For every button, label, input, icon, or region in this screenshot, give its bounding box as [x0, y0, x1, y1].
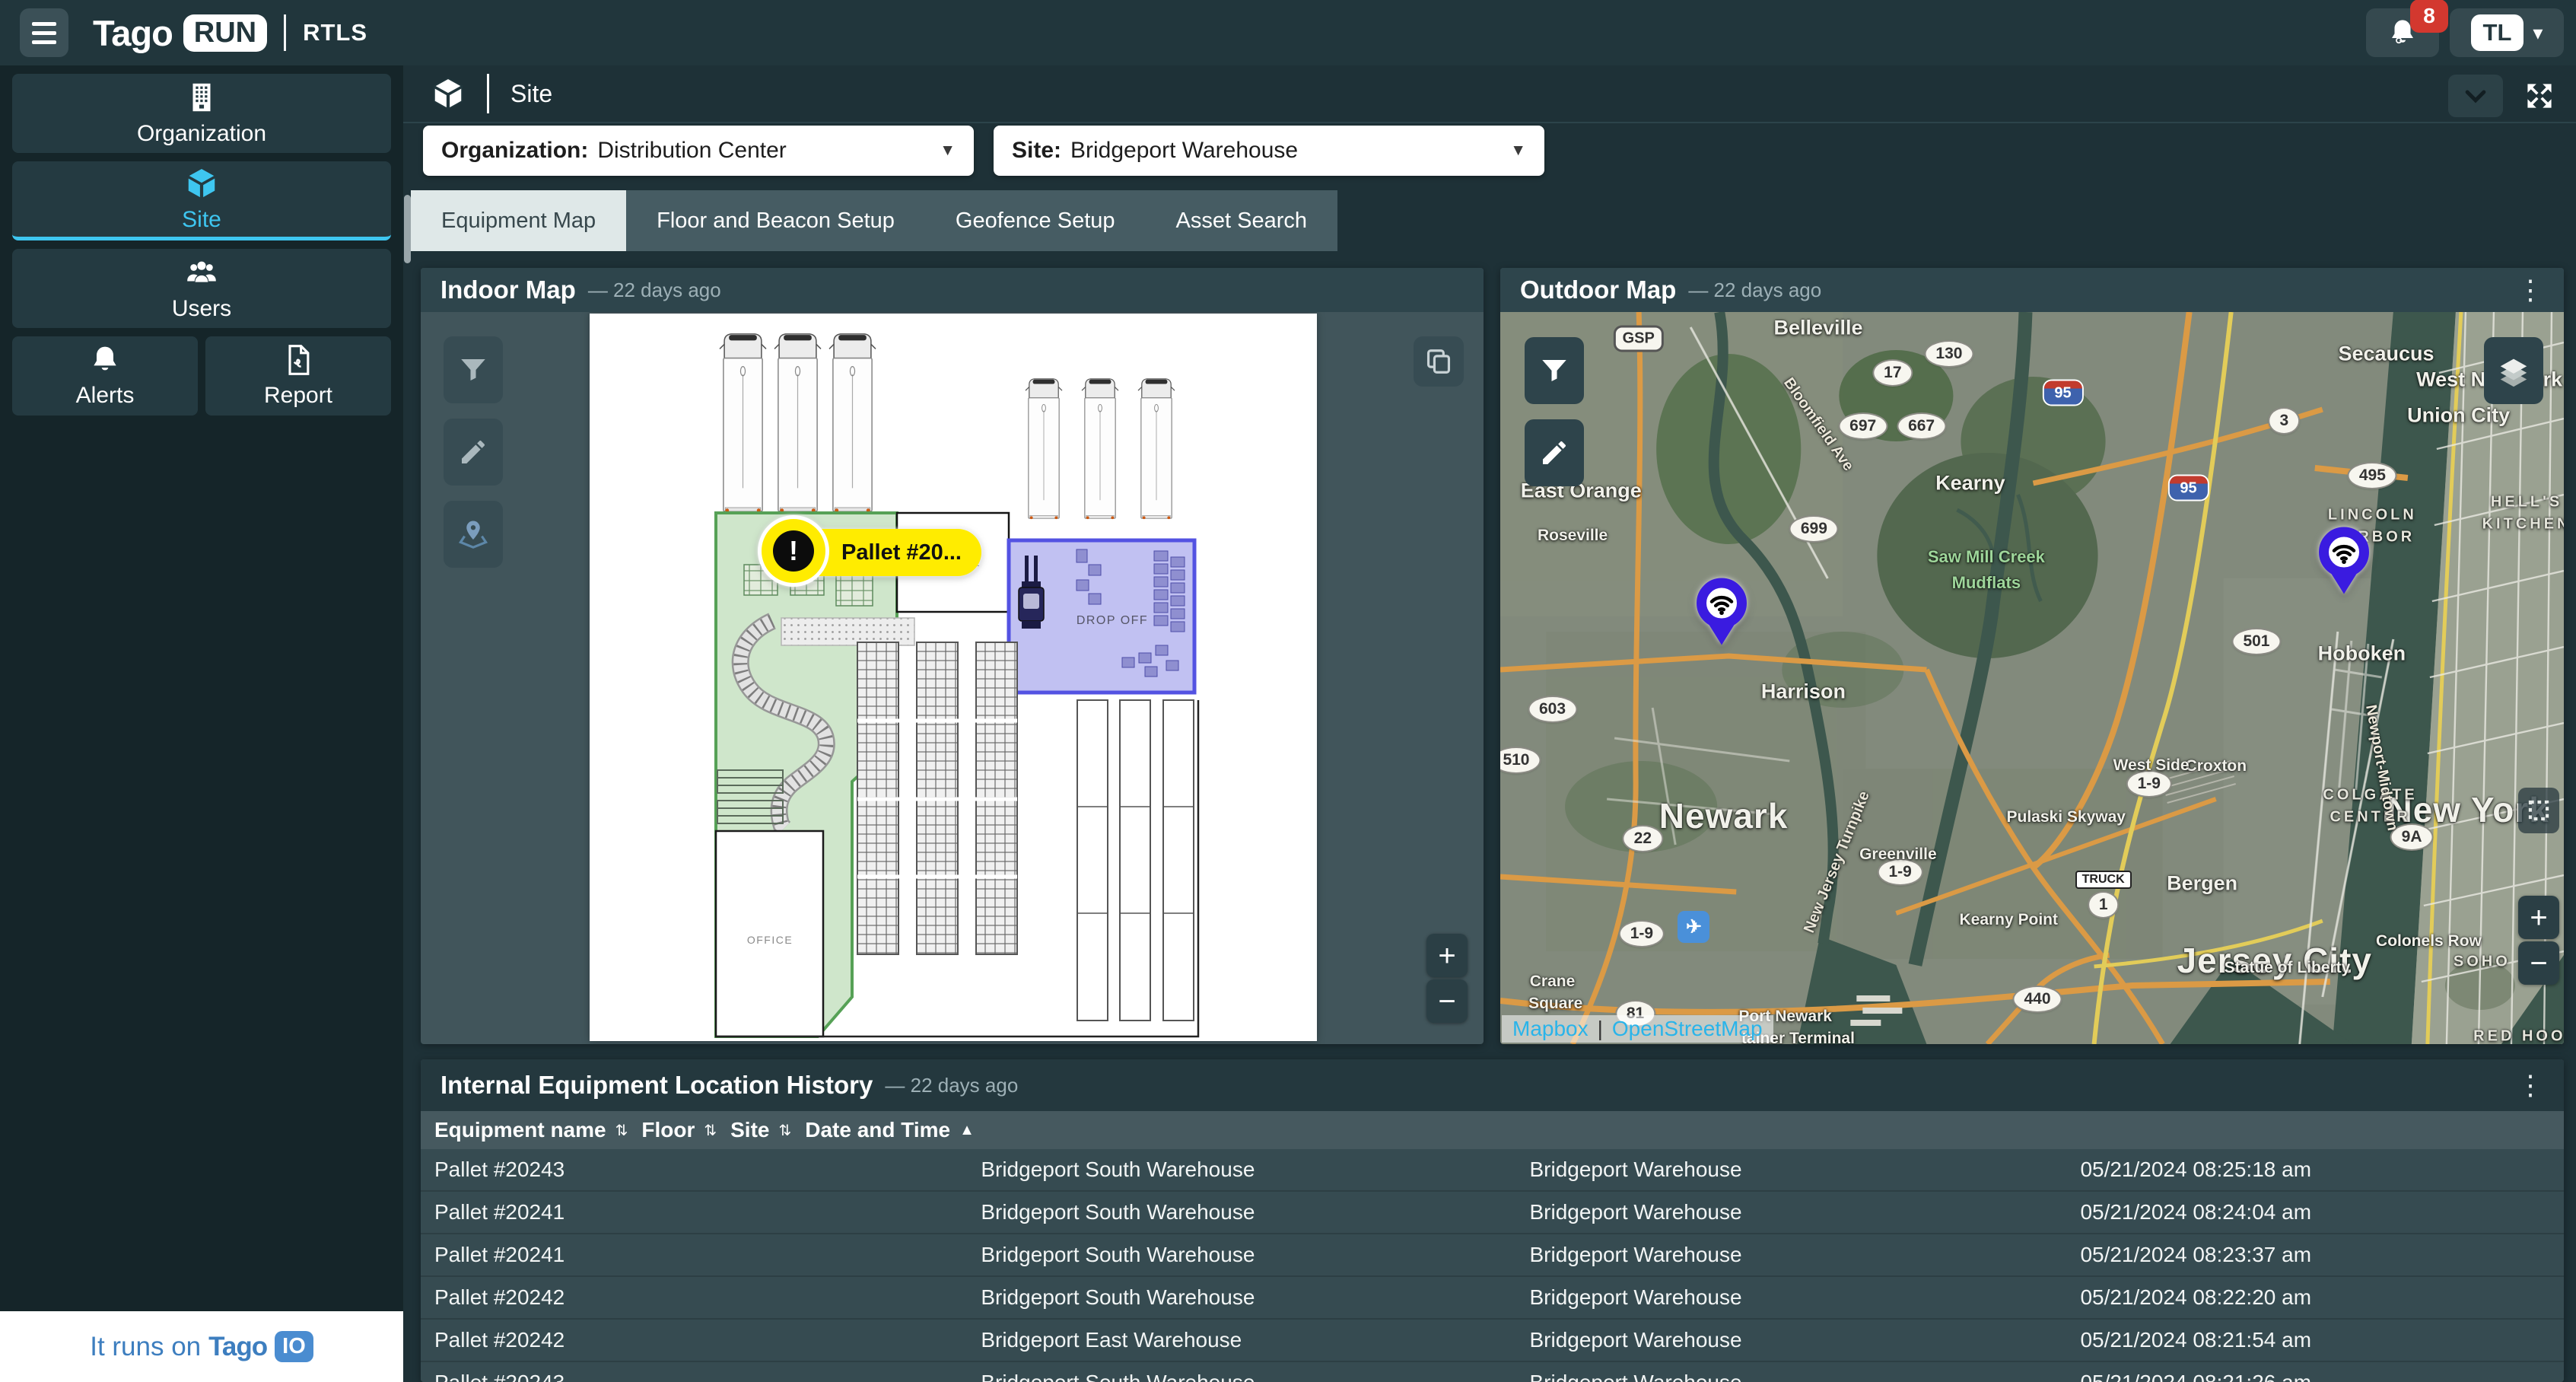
map-label: RED HOOK [2473, 1028, 2564, 1044]
site-cell: Bridgeport Warehouse [1515, 1149, 2066, 1190]
tab-bar: Equipment MapFloor and Beacon SetupGeofe… [411, 190, 1337, 251]
zoom-out-button[interactable]: − [2518, 941, 2559, 985]
filter-icon [457, 354, 489, 386]
indoor-map-panel: Indoor Map — 22 days ago [421, 268, 1484, 1044]
area-select-button[interactable] [2518, 788, 2559, 833]
powered-by-footer[interactable]: It runs on Tago IO [0, 1311, 403, 1382]
map-label: Bergen [2167, 872, 2237, 896]
sort-icon[interactable]: ⇅ [778, 1121, 791, 1140]
map-label: 95 [2169, 476, 2207, 499]
map-label: ✈ [1678, 911, 1709, 943]
datetime-cell: 05/21/2024 08:21:54 am [2066, 1320, 2564, 1361]
map-label: COLGATE [2323, 786, 2417, 804]
pencil-icon [458, 437, 488, 467]
dropdown-value: Distribution Center [597, 138, 786, 164]
tab[interactable]: Floor and Beacon Setup [626, 190, 925, 251]
floor-cell: Bridgeport East Warehouse [967, 1320, 1515, 1361]
pin-tail [2329, 569, 2359, 594]
indoor-map-body: LOADING [421, 312, 1484, 1044]
table-row[interactable]: Pallet #20241 Bridgeport South Warehouse… [421, 1234, 2564, 1277]
equipment-pin[interactable] [2319, 527, 2369, 594]
map-label: Greenville [1859, 845, 1937, 864]
outdoor-zoom-control: + − [2518, 896, 2559, 985]
sidebar-item-label: Users [172, 296, 231, 322]
sidebar-item-site[interactable]: Site [12, 161, 391, 240]
cube-icon [184, 166, 219, 201]
users-icon [184, 255, 219, 290]
panel-updated: — 22 days ago [885, 1074, 1018, 1097]
logo-run-badge: RUN [183, 14, 267, 52]
pdf-file-icon [281, 343, 315, 377]
floor-cell: Bridgeport South Warehouse [967, 1149, 1515, 1190]
site-cell: Bridgeport Warehouse [1515, 1320, 2066, 1361]
floorplan-drawing: LOADING [590, 314, 1317, 1041]
datetime-cell: 05/21/2024 08:23:37 am [2066, 1234, 2564, 1275]
map-label: Square [1528, 995, 1582, 1013]
table-row[interactable]: Pallet #20243 Bridgeport South Warehouse… [421, 1362, 2564, 1382]
map-label: 3 [2269, 409, 2298, 433]
sidebar-item-label: Report [264, 383, 332, 409]
map-label: 1 [2089, 893, 2118, 917]
zoom-in-button[interactable]: + [1426, 934, 1468, 977]
indoor-zoom-control: + − [1426, 934, 1468, 1023]
table-rows: Pallet #20243 Bridgeport South Warehouse… [421, 1149, 2564, 1382]
map-label: 17 [1874, 361, 1911, 385]
collapse-button[interactable] [2448, 75, 2503, 117]
chevron-down-icon: ▼ [940, 142, 956, 160]
io-badge: IO [275, 1331, 313, 1362]
map-label: Saw Mill Creek [1928, 547, 2045, 567]
sidebar-item-label: Organization [137, 121, 266, 147]
map-label: 1-9 [1620, 922, 1663, 946]
map-label: GSP [1616, 327, 1662, 349]
dropdown-value: Bridgeport Warehouse [1070, 138, 1298, 164]
panel-title: Internal Equipment Location History [440, 1071, 873, 1100]
filter-icon [1538, 355, 1570, 387]
alert-icon: ! [758, 515, 829, 587]
table-column-headers: Equipment name ⇅ Floor ⇅ Site ⇅ Date and… [421, 1111, 2564, 1149]
sidebar-item-organization[interactable]: Organization [12, 74, 391, 153]
map-label: 603 [1529, 697, 1576, 721]
copy-icon [1424, 347, 1453, 376]
sort-icon[interactable]: ▲ [959, 1122, 975, 1139]
filter-row: Organization: Distribution Center ▼ Site… [423, 126, 1544, 176]
equipment-name-cell: Pallet #20243 [421, 1362, 967, 1382]
pallet-label-text: Pallet #20... [841, 540, 962, 565]
sidebar-item-users[interactable]: Users [12, 249, 391, 328]
column-header[interactable]: Equipment name ⇅ [421, 1111, 628, 1149]
equipment-name-cell: Pallet #20241 [421, 1234, 967, 1275]
map-label: Belleville [1773, 317, 1862, 340]
datetime-cell: 05/21/2024 08:24:04 am [2066, 1192, 2564, 1233]
sort-icon[interactable]: ⇅ [704, 1121, 717, 1140]
panel-header: Internal Equipment Location History — 22… [421, 1059, 2564, 1111]
site-cell: Bridgeport Warehouse [1515, 1192, 2066, 1233]
pencil-icon [1539, 438, 1569, 468]
wifi-icon [2329, 535, 2359, 568]
column-label: Equipment name [434, 1118, 606, 1142]
map-label: 699 [1791, 517, 1837, 541]
main-content: Site Organization: Distribution Center ▼… [403, 65, 2576, 1382]
map-label: Kearny [1935, 472, 2005, 495]
avatar: TL [2471, 14, 2524, 51]
dropdown-label: Organization: [441, 138, 588, 164]
satellite-map[interactable]: GSPBelleville1301795SecaucusWest New Yor… [1500, 312, 2564, 1044]
sidebar-item-alerts[interactable]: Alerts [12, 336, 198, 416]
table-row[interactable]: Pallet #20242 Bridgeport South Warehouse… [421, 1277, 2564, 1320]
sidebar: Organization Site Users Alerts [0, 65, 403, 1382]
layers-icon [2496, 353, 2531, 388]
map-label: Mudflats [1952, 573, 2021, 593]
sort-icon[interactable]: ⇅ [615, 1121, 628, 1140]
building-icon [184, 80, 219, 115]
filter-tool-button[interactable] [1525, 337, 1584, 404]
map-label: 495 [2349, 463, 2396, 488]
zoom-out-button[interactable]: − [1426, 979, 1468, 1023]
app-logo: Tago RUN RTLS [93, 0, 367, 65]
copy-map-button[interactable] [1414, 336, 1464, 387]
floor-cell: Bridgeport South Warehouse [967, 1234, 1515, 1275]
map-label: West Side [2113, 756, 2190, 775]
scrollbar-thumb[interactable] [404, 195, 411, 263]
footer-text: It runs on [90, 1332, 201, 1362]
map-label: Crane [1530, 973, 1576, 991]
map-label: Union City [2407, 403, 2510, 427]
equipment-name-cell: Pallet #20242 [421, 1277, 967, 1318]
pallet-alert-label[interactable]: ! Pallet #20... [767, 529, 981, 576]
map-label: Statue of Liberty [2225, 959, 2351, 977]
map-label: 501 [2233, 629, 2279, 654]
map-label: Secaucus [2338, 342, 2434, 365]
datetime-cell: 05/21/2024 08:22:20 am [2066, 1277, 2564, 1318]
equipment-name-cell: Pallet #20242 [421, 1320, 967, 1361]
bell-icon [88, 343, 122, 377]
notifications-button[interactable]: 8 [2366, 8, 2439, 57]
logo-divider [284, 14, 286, 51]
account-button[interactable]: TL ▾ [2450, 8, 2564, 57]
openstreetmap-link[interactable]: OpenStreetMap [1612, 1017, 1763, 1041]
dashed-square-icon [2524, 796, 2553, 825]
expand-icon [2523, 79, 2556, 113]
map-label: LINCOLN [2328, 507, 2417, 524]
map-pin-icon [457, 518, 489, 550]
floor-cell: Bridgeport South Warehouse [967, 1362, 1515, 1382]
notification-badge: 8 [2410, 0, 2448, 33]
zone-label-office: OFFICE [747, 934, 793, 946]
fullscreen-button[interactable] [2520, 76, 2559, 116]
panel-header: Outdoor Map — 22 days ago ⋮ [1500, 268, 2564, 312]
column-label: Floor [641, 1118, 695, 1142]
product-name: RTLS [303, 19, 367, 46]
map-label: 440 [2014, 987, 2060, 1011]
map-label: HELL'S [2491, 494, 2562, 511]
kebab-menu-button[interactable]: ⋮ [2517, 276, 2544, 304]
map-label: 697 [1840, 414, 1886, 438]
pin-tail [1706, 621, 1737, 645]
location-history-panel: Internal Equipment Location History — 22… [421, 1059, 2564, 1382]
page-header: Site [403, 65, 2576, 123]
map-label: Croxton [2186, 757, 2247, 775]
chevron-down-icon: ▼ [1510, 142, 1526, 160]
map-label: 130 [1926, 342, 1972, 366]
edit-tool-button[interactable] [444, 419, 503, 486]
column-header[interactable]: Site ⇅ [717, 1111, 791, 1149]
sidebar-item-label: Alerts [76, 383, 135, 409]
top-bar: Tago RUN RTLS 8 TL ▾ [0, 0, 2576, 65]
table-row[interactable]: Pallet #20243 Bridgeport South Warehouse… [421, 1149, 2564, 1192]
map-label: TRUCK [2075, 871, 2132, 889]
kebab-menu-button[interactable]: ⋮ [2517, 1072, 2544, 1099]
map-label: 667 [1898, 414, 1945, 438]
datetime-cell: 05/21/2024 08:25:18 am [2066, 1149, 2564, 1190]
column-header[interactable]: Floor ⇅ [628, 1111, 717, 1149]
sidebar-item-label: Site [182, 207, 221, 233]
dropdown-label: Site: [1012, 138, 1061, 164]
panel-title: Indoor Map [440, 275, 576, 304]
header-divider [487, 74, 489, 113]
layers-button[interactable] [2484, 337, 2543, 404]
site-cell: Bridgeport Warehouse [1515, 1362, 2066, 1382]
panel-title: Outdoor Map [1520, 275, 1676, 304]
logo-text: Tago [93, 12, 173, 54]
attribution-divider: | [1598, 1017, 1603, 1041]
organization-dropdown[interactable]: Organization: Distribution Center ▼ [423, 126, 974, 176]
map-label: Colonels Row [2376, 932, 2482, 951]
warehouse-floorplan[interactable]: LOADING [590, 314, 1317, 1041]
tab[interactable]: Asset Search [1146, 190, 1337, 251]
map-attribution: Mapbox | OpenStreetMap [1502, 1015, 1773, 1043]
site-cell: Bridgeport Warehouse [1515, 1234, 2066, 1275]
map-label: SOHO [2454, 954, 2511, 971]
map-label: Harrison [1761, 680, 1846, 704]
column-header[interactable]: Date and Time ▲ [791, 1111, 975, 1149]
map-label: Hoboken [2318, 642, 2406, 666]
cube-icon [431, 76, 466, 111]
site-dropdown[interactable]: Site: Bridgeport Warehouse ▼ [994, 126, 1544, 176]
tago-brand: Tago [208, 1332, 267, 1362]
panel-updated: — 22 days ago [588, 279, 721, 302]
column-label: Site [730, 1118, 769, 1142]
edit-tool-button[interactable] [1525, 419, 1584, 486]
map-label: 95 [2043, 381, 2081, 404]
menu-button[interactable] [20, 8, 68, 57]
zone-label-dropoff: DROP OFF [1077, 614, 1148, 627]
column-label: Date and Time [805, 1118, 950, 1142]
outdoor-map-panel: Outdoor Map — 22 days ago ⋮ [1500, 268, 2564, 1044]
mapbox-link[interactable]: Mapbox [1512, 1017, 1589, 1041]
zoom-in-button[interactable]: + [2518, 896, 2559, 939]
floor-cell: Bridgeport South Warehouse [967, 1277, 1515, 1318]
page-title: Site [510, 80, 552, 108]
tab[interactable]: Geofence Setup [925, 190, 1146, 251]
floor-cell: Bridgeport South Warehouse [967, 1192, 1515, 1233]
equipment-name-cell: Pallet #20243 [421, 1149, 967, 1190]
map-label: KITCHEN [2482, 515, 2564, 533]
site-cell: Bridgeport Warehouse [1515, 1277, 2066, 1318]
filter-tool-button[interactable] [444, 336, 503, 403]
table-row[interactable]: Pallet #20242 Bridgeport East Warehouse … [421, 1320, 2564, 1362]
panel-header: Indoor Map — 22 days ago [421, 268, 1484, 312]
wifi-icon [1706, 587, 1737, 620]
sidebar-item-report[interactable]: Report [205, 336, 391, 416]
equipment-name-cell: Pallet #20241 [421, 1192, 967, 1233]
datetime-cell: 05/21/2024 08:21:26 am [2066, 1362, 2564, 1382]
locate-tool-button[interactable] [444, 501, 503, 568]
equipment-pin[interactable] [1697, 578, 1747, 645]
map-label: Kearny Point [1959, 911, 2058, 929]
map-label: Newark [1659, 795, 1789, 836]
map-label: 22 [1624, 826, 1662, 851]
table-row[interactable]: Pallet #20241 Bridgeport South Warehouse… [421, 1192, 2564, 1234]
map-label: Pulaski Skyway [2007, 808, 2126, 826]
map-label: Roseville [1538, 527, 1608, 545]
tab[interactable]: Equipment Map [411, 190, 626, 251]
panel-updated: — 22 days ago [1688, 279, 1821, 302]
chevron-down-icon [2460, 81, 2491, 111]
chevron-down-icon: ▾ [2533, 21, 2543, 45]
